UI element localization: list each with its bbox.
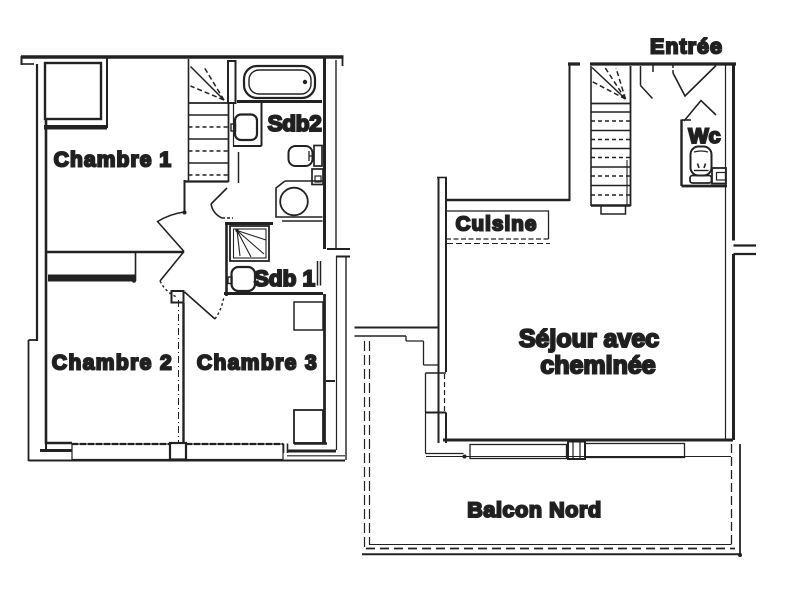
svg-text:Wc: Wc xyxy=(688,124,720,148)
svg-text:Entrée: Entrée xyxy=(650,35,723,59)
svg-text:Sdb 1: Sdb 1 xyxy=(254,266,315,291)
svg-text:Chambre 2: Chambre 2 xyxy=(52,352,173,375)
svg-text:Séjour avec: Séjour avec xyxy=(519,325,659,353)
svg-text:Sdb2: Sdb2 xyxy=(268,111,322,136)
svg-text:Balcon Nord: Balcon Nord xyxy=(467,498,601,522)
svg-text:Chambre 3: Chambre 3 xyxy=(197,352,318,375)
svg-text:cheminée: cheminée xyxy=(540,352,655,380)
svg-text:Chambre 1: Chambre 1 xyxy=(54,149,172,172)
svg-text:Cuisine: Cuisine xyxy=(456,213,538,236)
